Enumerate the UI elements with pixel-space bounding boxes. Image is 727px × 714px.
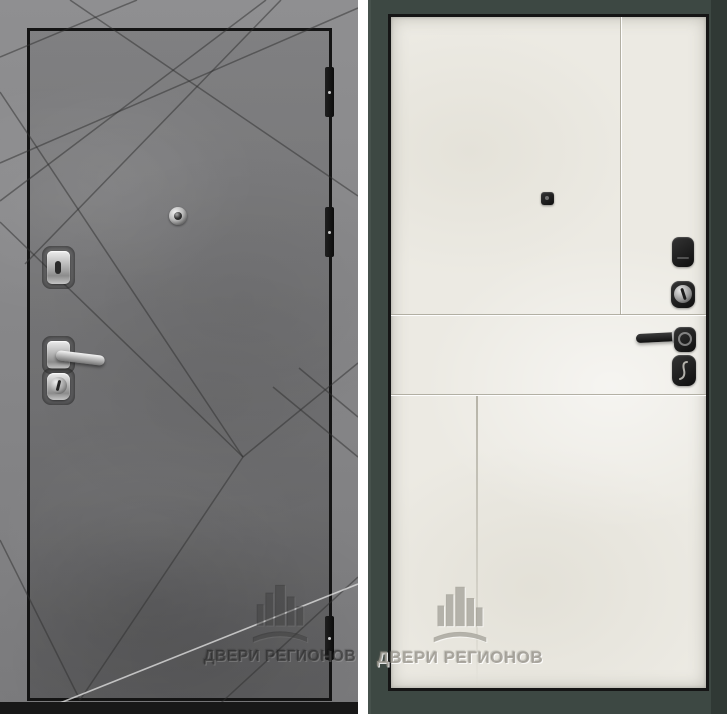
keyhole-flap	[677, 257, 689, 259]
peephole-lens	[174, 212, 182, 220]
door-product-photo: ДВЕРИ РЕГИОНОВ	[0, 0, 727, 714]
hinge-pin	[328, 231, 331, 234]
peephole	[541, 192, 554, 205]
door-back-panel: ДВЕРИ РЕГИОНОВ	[368, 0, 727, 714]
panel-seam-vertical-top	[620, 17, 622, 315]
keyhole-icon	[55, 261, 61, 274]
hinge-top	[325, 67, 334, 117]
peephole-lens	[545, 196, 549, 200]
back-inner-panel	[388, 14, 709, 691]
latch-keyhole-icon	[677, 360, 691, 381]
cylinder-lock	[42, 368, 75, 405]
hinge-pin	[328, 637, 331, 640]
panel-seam-vertical-bottom	[476, 396, 478, 686]
peephole	[169, 207, 187, 225]
door-front-panel: ДВЕРИ РЕГИОНОВ	[0, 0, 358, 714]
handle-rosette	[674, 327, 696, 352]
hinge-pin	[328, 91, 331, 94]
night-latch	[672, 355, 696, 386]
frame-edge-shade	[711, 0, 727, 714]
door-bottom-edge	[0, 702, 358, 714]
cylinder-lock	[671, 281, 695, 308]
panel-seam-horizontal-upper	[391, 314, 706, 316]
lock-escutcheon	[672, 237, 694, 267]
panel-seam-horizontal-lower	[391, 394, 706, 396]
hinge-middle	[325, 207, 334, 257]
keyhole-escutcheon	[42, 246, 75, 289]
rosette-ring	[678, 332, 692, 346]
hinge-bottom	[325, 616, 334, 660]
